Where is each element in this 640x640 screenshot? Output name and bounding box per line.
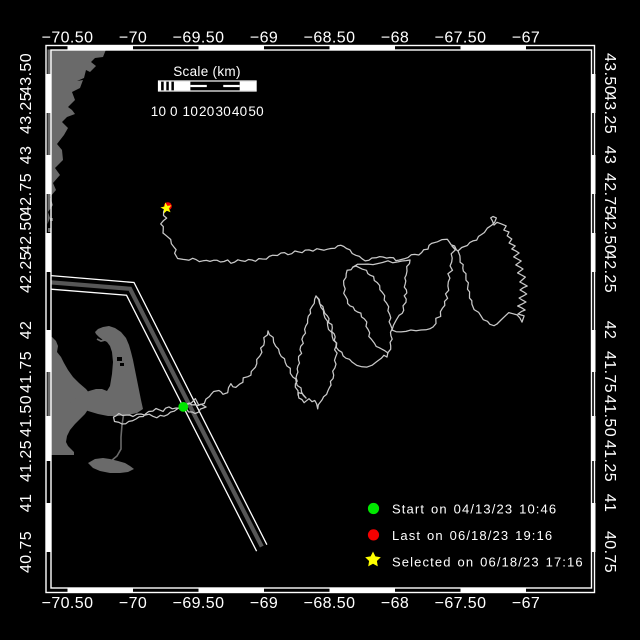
svg-text:−69: −69	[250, 595, 278, 612]
svg-text:41: 41	[601, 494, 618, 513]
svg-text:43.50: 43.50	[601, 53, 618, 95]
svg-text:42.75: 42.75	[601, 173, 618, 215]
svg-text:Selected on 06/18/23 17:16: Selected on 06/18/23 17:16	[392, 555, 584, 570]
svg-text:−70: −70	[119, 30, 147, 47]
svg-text:42: 42	[601, 321, 618, 340]
svg-text:43: 43	[601, 146, 618, 165]
svg-text:40.75: 40.75	[601, 531, 618, 573]
svg-text:−69.50: −69.50	[173, 595, 225, 612]
svg-text:42: 42	[18, 321, 35, 340]
svg-text:41.50: 41.50	[601, 395, 618, 437]
svg-text:42.25: 42.25	[18, 251, 35, 293]
svg-text:−70: −70	[119, 595, 147, 612]
svg-text:−67.50: −67.50	[435, 595, 487, 612]
svg-text:Last on 06/18/23 19:16: Last on 06/18/23 19:16	[392, 528, 553, 543]
svg-text:41.75: 41.75	[18, 351, 35, 393]
svg-text:43.50: 43.50	[18, 53, 35, 95]
svg-text:42.25: 42.25	[601, 251, 618, 293]
svg-text:Start on 04/13/23 10:46: Start on 04/13/23 10:46	[392, 502, 557, 517]
svg-text:41.25: 41.25	[18, 440, 35, 482]
svg-text:50: 50	[248, 104, 264, 119]
svg-text:42.75: 42.75	[18, 173, 35, 215]
svg-text:41.75: 41.75	[601, 351, 618, 393]
svg-text:42.50: 42.50	[18, 212, 35, 254]
svg-text:Scale (km): Scale (km)	[173, 64, 241, 79]
svg-text:10: 10	[183, 104, 199, 119]
svg-text:30: 30	[215, 104, 231, 119]
svg-text:−70.50: −70.50	[42, 595, 94, 612]
svg-text:−69: −69	[250, 30, 278, 47]
svg-text:−68: −68	[381, 595, 409, 612]
svg-text:41.25: 41.25	[601, 440, 618, 482]
svg-text:42.50: 42.50	[601, 212, 618, 254]
svg-text:−68.50: −68.50	[304, 30, 356, 47]
svg-text:43: 43	[18, 146, 35, 165]
svg-text:40.75: 40.75	[18, 531, 35, 573]
svg-text:10: 10	[151, 104, 167, 119]
svg-text:41.50: 41.50	[18, 395, 35, 437]
svg-text:0: 0	[170, 104, 178, 119]
svg-text:−69.50: −69.50	[173, 30, 225, 47]
svg-text:−67.50: −67.50	[435, 30, 487, 47]
svg-text:41: 41	[18, 494, 35, 513]
svg-text:−68.50: −68.50	[304, 595, 356, 612]
svg-text:20: 20	[199, 104, 215, 119]
svg-text:43.25: 43.25	[18, 92, 35, 134]
svg-text:40: 40	[232, 104, 248, 119]
svg-text:−67: −67	[512, 595, 540, 612]
svg-text:−70.50: −70.50	[42, 30, 94, 47]
svg-text:−68: −68	[381, 30, 409, 47]
svg-text:43.25: 43.25	[601, 92, 618, 134]
svg-text:−67: −67	[512, 30, 540, 47]
